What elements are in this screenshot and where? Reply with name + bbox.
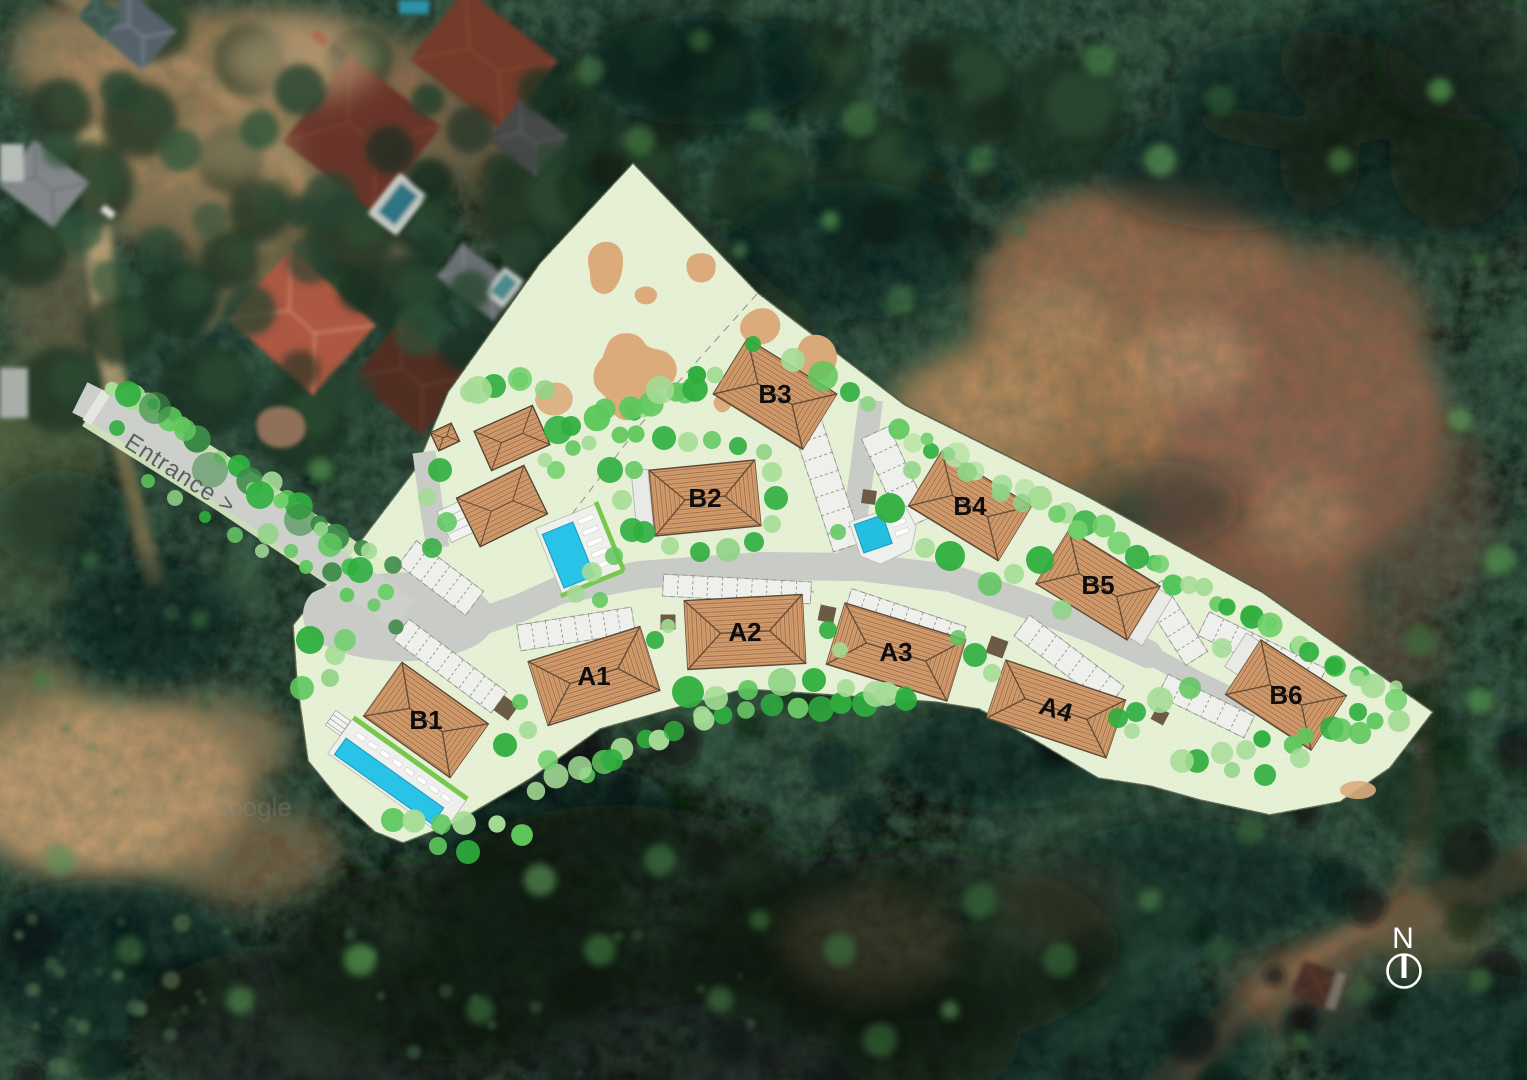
svg-text:Google: Google (208, 792, 292, 822)
svg-text:B4: B4 (953, 491, 987, 521)
svg-text:A3: A3 (879, 637, 912, 667)
svg-text:B1: B1 (409, 705, 442, 735)
svg-text:B5: B5 (1081, 570, 1114, 600)
svg-text:N: N (1392, 922, 1414, 955)
svg-text:A1: A1 (577, 661, 610, 691)
svg-text:B6: B6 (1269, 680, 1302, 710)
svg-text:A2: A2 (728, 617, 761, 647)
svg-text:B2: B2 (688, 483, 721, 513)
svg-text:B3: B3 (758, 379, 791, 409)
